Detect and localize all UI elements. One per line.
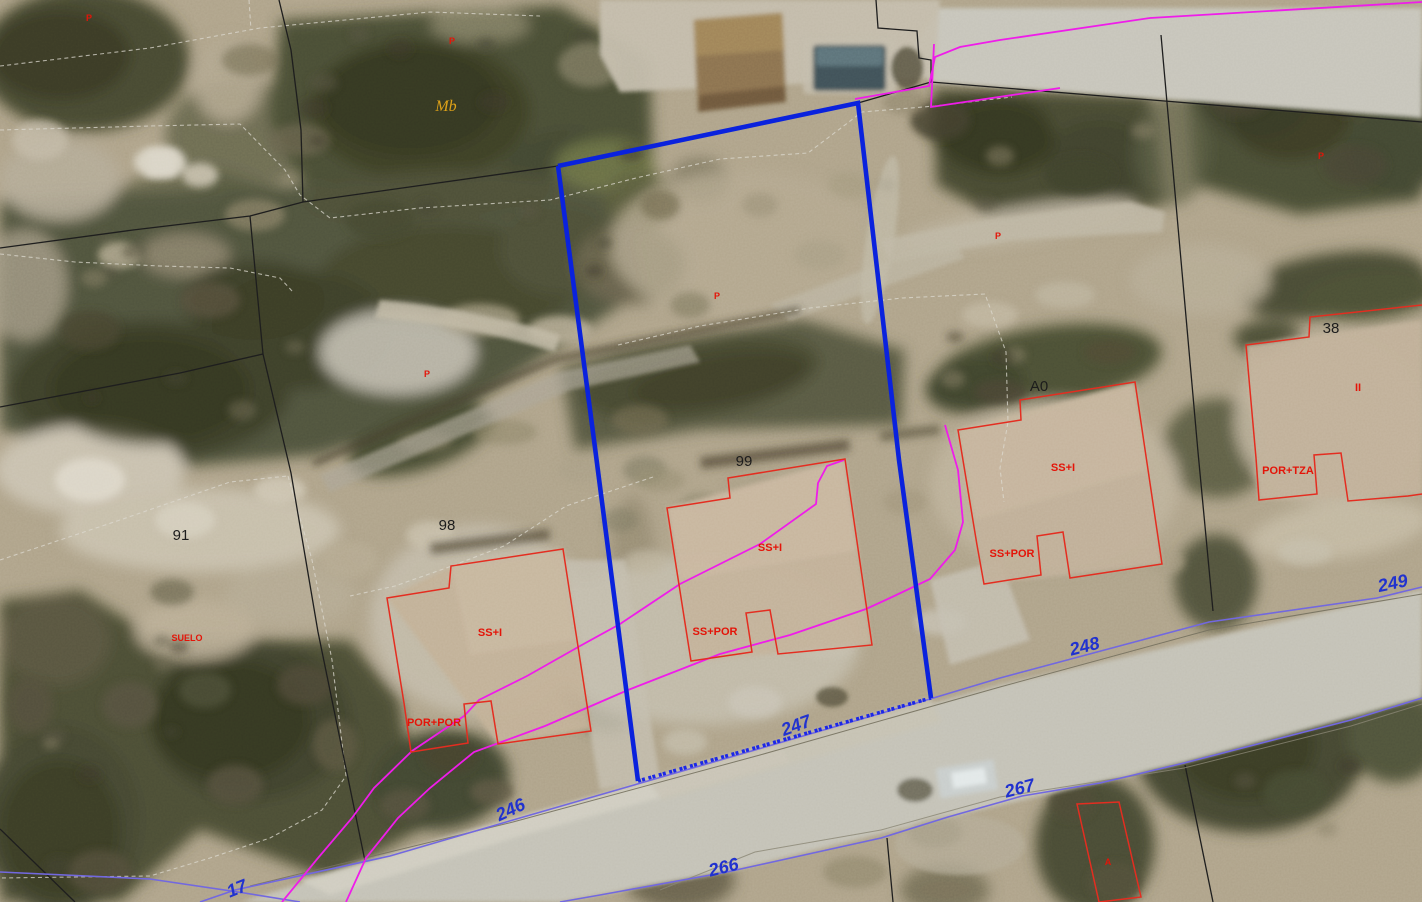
svg-text:99: 99 xyxy=(736,453,753,470)
svg-text:SS+I: SS+I xyxy=(758,542,782,554)
svg-text:P: P xyxy=(424,369,430,379)
svg-text:P: P xyxy=(449,36,455,46)
svg-text:P: P xyxy=(995,231,1001,241)
svg-text:98: 98 xyxy=(439,517,456,534)
svg-text:SS+POR: SS+POR xyxy=(693,626,738,638)
svg-text:POR+TZA: POR+TZA xyxy=(1262,465,1314,477)
svg-text:SS+I: SS+I xyxy=(478,627,502,639)
svg-text:A0: A0 xyxy=(1030,378,1048,395)
svg-text:A: A xyxy=(1105,857,1112,867)
svg-text:P: P xyxy=(714,291,720,301)
svg-text:P: P xyxy=(86,13,92,23)
svg-text:POR+POR: POR+POR xyxy=(407,717,461,729)
svg-text:SUELO: SUELO xyxy=(171,633,202,643)
svg-text:38: 38 xyxy=(1323,320,1340,337)
svg-text:Mb: Mb xyxy=(434,98,456,115)
svg-text:SS+I: SS+I xyxy=(1051,462,1075,474)
svg-text:SS+POR: SS+POR xyxy=(990,548,1035,560)
svg-text:II: II xyxy=(1355,382,1361,394)
svg-text:91: 91 xyxy=(173,527,190,544)
svg-text:P: P xyxy=(1318,151,1324,161)
